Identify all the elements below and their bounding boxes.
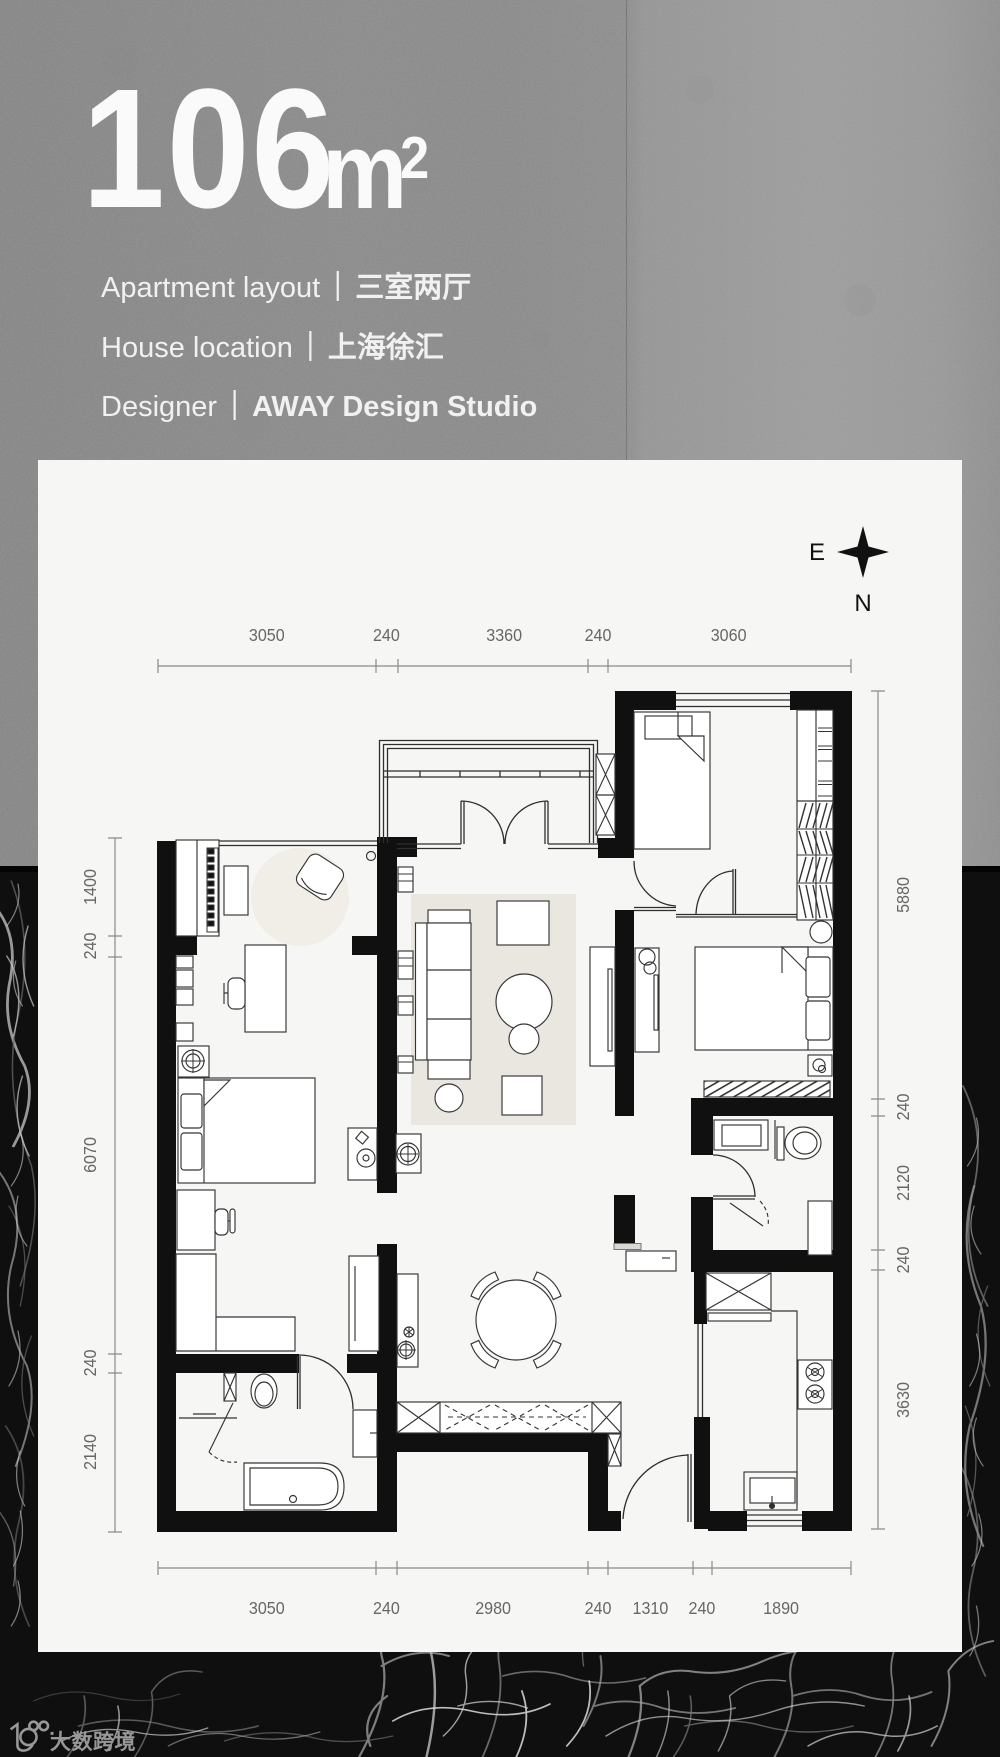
svg-text:1890: 1890 xyxy=(763,1598,799,1618)
svg-text:2980: 2980 xyxy=(475,1598,511,1618)
svg-text:240: 240 xyxy=(689,1598,716,1618)
svg-text:3060: 3060 xyxy=(711,625,747,645)
svg-text:2140: 2140 xyxy=(80,1434,100,1470)
svg-text:240: 240 xyxy=(80,933,100,960)
svg-text:3630: 3630 xyxy=(893,1382,913,1418)
svg-text:240: 240 xyxy=(585,1598,612,1618)
svg-text:N: N xyxy=(854,590,871,617)
svg-text:5880: 5880 xyxy=(893,877,913,913)
svg-text:240: 240 xyxy=(373,625,400,645)
svg-text:6070: 6070 xyxy=(80,1137,100,1173)
svg-text:E: E xyxy=(809,539,825,566)
svg-text:240: 240 xyxy=(893,1247,913,1274)
svg-text:240: 240 xyxy=(80,1350,100,1377)
svg-text:240: 240 xyxy=(585,625,612,645)
svg-text:1400: 1400 xyxy=(80,869,100,905)
svg-text:1310: 1310 xyxy=(633,1598,669,1618)
svg-text:240: 240 xyxy=(373,1598,400,1618)
svg-text:3050: 3050 xyxy=(249,1598,285,1618)
svg-text:240: 240 xyxy=(893,1094,913,1121)
svg-text:3360: 3360 xyxy=(486,625,522,645)
svg-text:3050: 3050 xyxy=(249,625,285,645)
svg-text:2120: 2120 xyxy=(893,1165,913,1201)
